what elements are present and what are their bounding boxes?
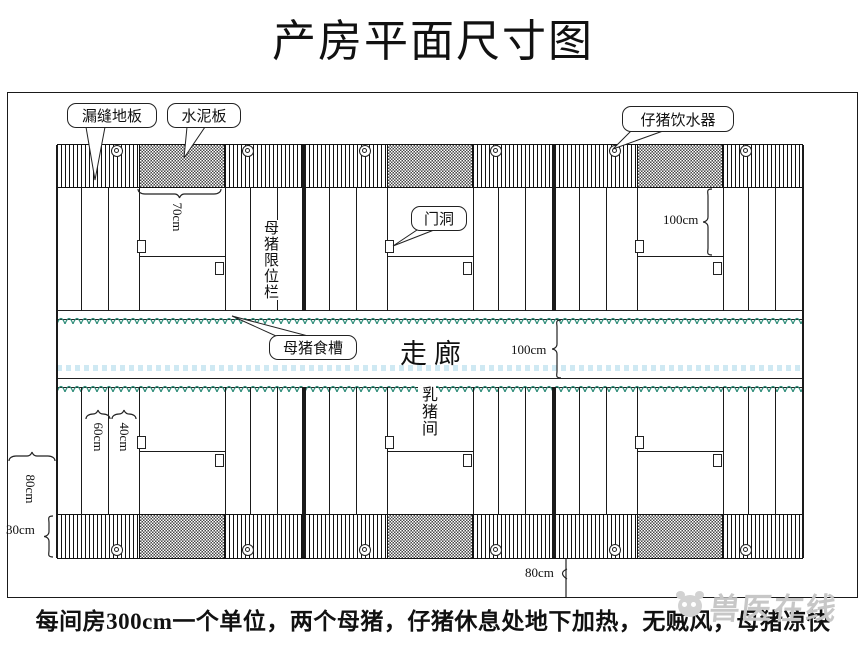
- callout-cement-board: 水泥板: [167, 103, 241, 128]
- dim-60cm: 60cm: [90, 423, 106, 452]
- watermark: 兽医在线: [646, 582, 856, 626]
- sow-crate-label: 母猪限位栏: [261, 220, 279, 300]
- pointer-slatted-floor: [86, 127, 105, 180]
- brace-70cm: [138, 189, 221, 198]
- callout-piglet-drinker: 仔猪饮水器: [622, 106, 734, 132]
- pointer-sow-feed-trough: [232, 316, 308, 336]
- brace-30cm: [44, 516, 53, 557]
- brace-100cm-corridor: [552, 320, 561, 378]
- dim-40cm: 40cm: [116, 423, 132, 452]
- pointer-cement-board: [184, 127, 205, 158]
- pointer-piglet-drinker: [613, 131, 663, 149]
- watermark-text: 兽医在线: [708, 584, 841, 628]
- callout-door-opening: 门洞: [411, 206, 467, 231]
- watermark-animal-icon: [678, 595, 702, 617]
- brace-60cm: [86, 410, 110, 419]
- corridor-label: 走廊: [400, 332, 468, 371]
- dim-80cm-side: 80cm: [22, 475, 38, 504]
- pointer-door-opening: [393, 230, 434, 246]
- callout-sow-feed-trough: 母猪食槽: [269, 335, 357, 360]
- dim-70cm: 70cm: [169, 203, 185, 232]
- callout-slatted-floor: 漏缝地板: [67, 103, 157, 128]
- brace-100cm-crate: [703, 189, 712, 255]
- dim-30cm: 30cm: [6, 522, 35, 538]
- dim-100cm-corridor: 100cm: [511, 342, 546, 358]
- dim-80cm-end: 80cm: [525, 565, 554, 581]
- brace-40cm: [112, 410, 136, 419]
- dim-100cm-crate: 100cm: [663, 212, 698, 228]
- piglet-room-label: 乳猪间: [418, 386, 436, 437]
- diagram-overlay: [0, 0, 866, 649]
- farrowing-house-plan: 产房平面尺寸图 漏缝地板 水泥板 仔猪饮水器 门洞 母猪食槽 走廊 母猪限位栏 …: [0, 0, 866, 649]
- brace-80cm-side: [9, 452, 55, 461]
